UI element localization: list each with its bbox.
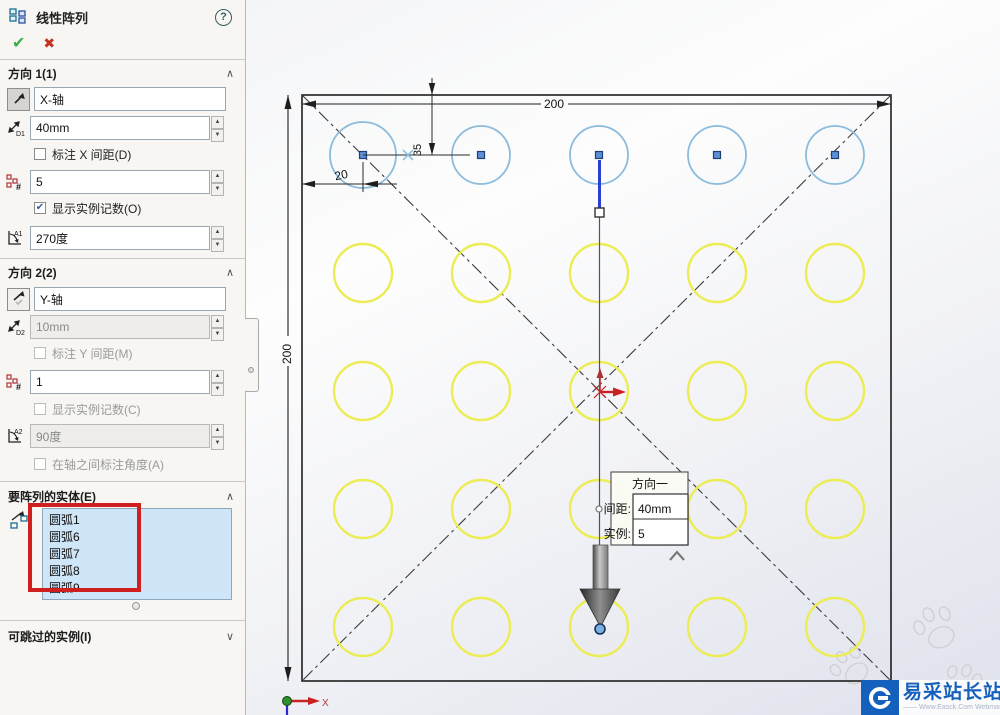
panel-title: 线性阵列: [36, 8, 88, 27]
pattern-end-point[interactable]: [595, 624, 605, 634]
pattern-circle[interactable]: [806, 362, 864, 420]
dim-left-value[interactable]: 200: [280, 344, 294, 364]
pattern-circle[interactable]: [688, 480, 746, 538]
show-instance-count1-checkbox[interactable]: [34, 202, 46, 214]
angle-a1-icon: A1: [0, 228, 30, 248]
dim-y-spacing-checkbox[interactable]: [34, 347, 46, 359]
callout-spacing-value[interactable]: 40mm: [638, 502, 671, 516]
entity-item[interactable]: 圆弧8: [49, 563, 231, 580]
entities-listbox[interactable]: 圆弧1圆弧6圆弧7圆弧8圆弧9: [42, 508, 232, 600]
pattern-circle[interactable]: [806, 598, 864, 656]
circle-center-marker[interactable]: [596, 152, 603, 159]
direction2-angle-input[interactable]: 90度: [30, 424, 210, 448]
entity-item[interactable]: 圆弧6: [49, 529, 231, 546]
direction2-angle-spinner[interactable]: ▲▼: [211, 424, 224, 448]
spacing-d1-icon: D1: [0, 118, 30, 138]
direction2-reverse-button[interactable]: [7, 288, 30, 311]
dim-y-spacing-label: 标注 Y 间距(M): [52, 345, 132, 362]
svg-text:D2: D2: [16, 330, 25, 337]
dimension-top-200[interactable]: [302, 101, 891, 108]
dim-x-spacing-label: 标注 X 间距(D): [52, 146, 131, 163]
circle-center-marker[interactable]: [714, 152, 721, 159]
direction1-reverse-button[interactable]: [7, 88, 30, 111]
flyout-tab-dot-icon: [248, 367, 254, 373]
pattern-circle[interactable]: [806, 244, 864, 302]
svg-text:D1: D1: [16, 131, 25, 138]
svg-text:#: #: [16, 182, 21, 192]
svg-text:#: #: [16, 382, 21, 392]
entities-header[interactable]: 要阵列的实体(E): [0, 488, 96, 505]
arrow-ne-icon: [12, 92, 26, 106]
svg-text:A1: A1: [14, 231, 23, 238]
callout-anchor-dot: [596, 506, 602, 512]
direction1-header[interactable]: 方向 1(1): [0, 65, 57, 82]
listbox-resize-handle[interactable]: [132, 602, 140, 610]
direction1-collapse-icon[interactable]: ∧: [226, 67, 234, 80]
direction1-angle-spinner[interactable]: ▲▼: [211, 226, 224, 250]
pattern-circle[interactable]: [688, 598, 746, 656]
ok-button[interactable]: ✔: [12, 33, 25, 53]
direction2-axis-input[interactable]: Y-轴: [34, 287, 226, 311]
dimension-20[interactable]: [302, 162, 397, 192]
angle-a2-icon: A2: [0, 426, 30, 446]
dim-x-spacing-checkbox[interactable]: [34, 148, 46, 160]
pattern-circle[interactable]: [334, 244, 392, 302]
pattern-circle[interactable]: [334, 598, 392, 656]
arrow-ne-check-icon: [11, 291, 27, 307]
direction1-instances-spinner[interactable]: ▲▼: [211, 170, 224, 194]
pattern-drag-arrow[interactable]: [580, 545, 620, 627]
graphics-area[interactable]: 200 200 35 20: [246, 0, 1000, 715]
circle-center-marker[interactable]: [478, 152, 485, 159]
watermark-subtitle: —— Www.Easck.Com Webmaster: [903, 703, 1000, 712]
dimension-left-200[interactable]: [285, 95, 292, 681]
direction2-instances-input[interactable]: 1: [30, 370, 210, 394]
callout-instances-label: 实例:: [604, 526, 631, 541]
skip-instances-header[interactable]: 可跳过的实例(I): [0, 628, 91, 645]
solidworks-window: 200 200 35 20: [0, 0, 1000, 715]
dim-top-value[interactable]: 200: [544, 97, 564, 111]
direction2-header[interactable]: 方向 2(2): [0, 264, 57, 281]
callout-spacing-label: 间距:: [604, 502, 631, 516]
callout-collapse-chevron-icon[interactable]: [670, 552, 684, 560]
direction2-collapse-icon[interactable]: ∧: [226, 266, 234, 279]
entities-icon: [8, 510, 30, 537]
pattern-circle[interactable]: [452, 598, 510, 656]
skip-instances-expand-icon[interactable]: ∨: [226, 630, 234, 643]
angle-between-axes-checkbox[interactable]: [34, 458, 46, 470]
direction2-spacing-input[interactable]: 10mm: [30, 315, 210, 339]
pattern-circle[interactable]: [334, 362, 392, 420]
dim-35-value[interactable]: 35: [412, 144, 424, 156]
pattern-circle[interactable]: [688, 362, 746, 420]
svg-text:A2: A2: [14, 429, 23, 436]
entity-item[interactable]: 圆弧9: [49, 580, 231, 597]
direction1-instances-input[interactable]: 5: [30, 170, 210, 194]
show-instance-count1-label: 显示实例记数(O): [52, 200, 141, 217]
circle-center-marker[interactable]: [832, 152, 839, 159]
entity-item[interactable]: 圆弧1: [49, 512, 231, 529]
axis-x-label: X: [322, 698, 329, 709]
dim-20-value[interactable]: 20: [333, 167, 349, 184]
direction1-angle-input[interactable]: 270度: [30, 226, 210, 250]
direction2-spacing-spinner[interactable]: ▲▼: [211, 315, 224, 339]
angle-between-axes-label: 在轴之间标注角度(A): [52, 456, 164, 473]
spacing-d2-icon: D2: [0, 317, 30, 337]
direction1-spacing-input[interactable]: 40mm: [30, 116, 210, 140]
callout-instances-value[interactable]: 5: [638, 527, 645, 541]
direction-handle[interactable]: [595, 208, 604, 217]
help-icon[interactable]: ?: [215, 9, 232, 26]
property-manager-panel: 线性阵列 ? ✔ ✖ 方向 1(1) ∧ X-轴 D1: [0, 0, 246, 715]
easck-logo-icon: [861, 680, 899, 715]
instances-d1-icon: #: [0, 172, 30, 192]
origin-triad-icon: X: [283, 697, 330, 715]
pattern-circle[interactable]: [334, 480, 392, 538]
drawing-svg: 200 200 35 20: [246, 0, 1000, 715]
linear-pattern-icon: [8, 8, 30, 26]
show-instance-count2-checkbox[interactable]: [34, 403, 46, 415]
pattern-circle[interactable]: [688, 244, 746, 302]
direction1-spacing-spinner[interactable]: ▲▼: [211, 116, 224, 140]
callout-title: 方向一: [632, 476, 668, 491]
panel-flyout-tab[interactable]: [245, 318, 259, 392]
entities-collapse-icon[interactable]: ∧: [226, 490, 234, 503]
cancel-button[interactable]: ✖: [43, 35, 55, 52]
watermark-site-name: 易采站长站: [903, 683, 1000, 703]
pattern-circle[interactable]: [452, 362, 510, 420]
pattern-circle[interactable]: [806, 480, 864, 538]
instances-d2-icon: #: [0, 372, 30, 392]
direction1-axis-input[interactable]: X-轴: [34, 87, 226, 111]
entity-item[interactable]: 圆弧7: [49, 546, 231, 563]
show-instance-count2-label: 显示实例记数(C): [52, 401, 141, 418]
pattern-circle[interactable]: [452, 480, 510, 538]
direction2-instances-spinner[interactable]: ▲▼: [211, 370, 224, 394]
site-watermark: 易采站长站 —— Www.Easck.Com Webmaster: [861, 680, 1000, 715]
